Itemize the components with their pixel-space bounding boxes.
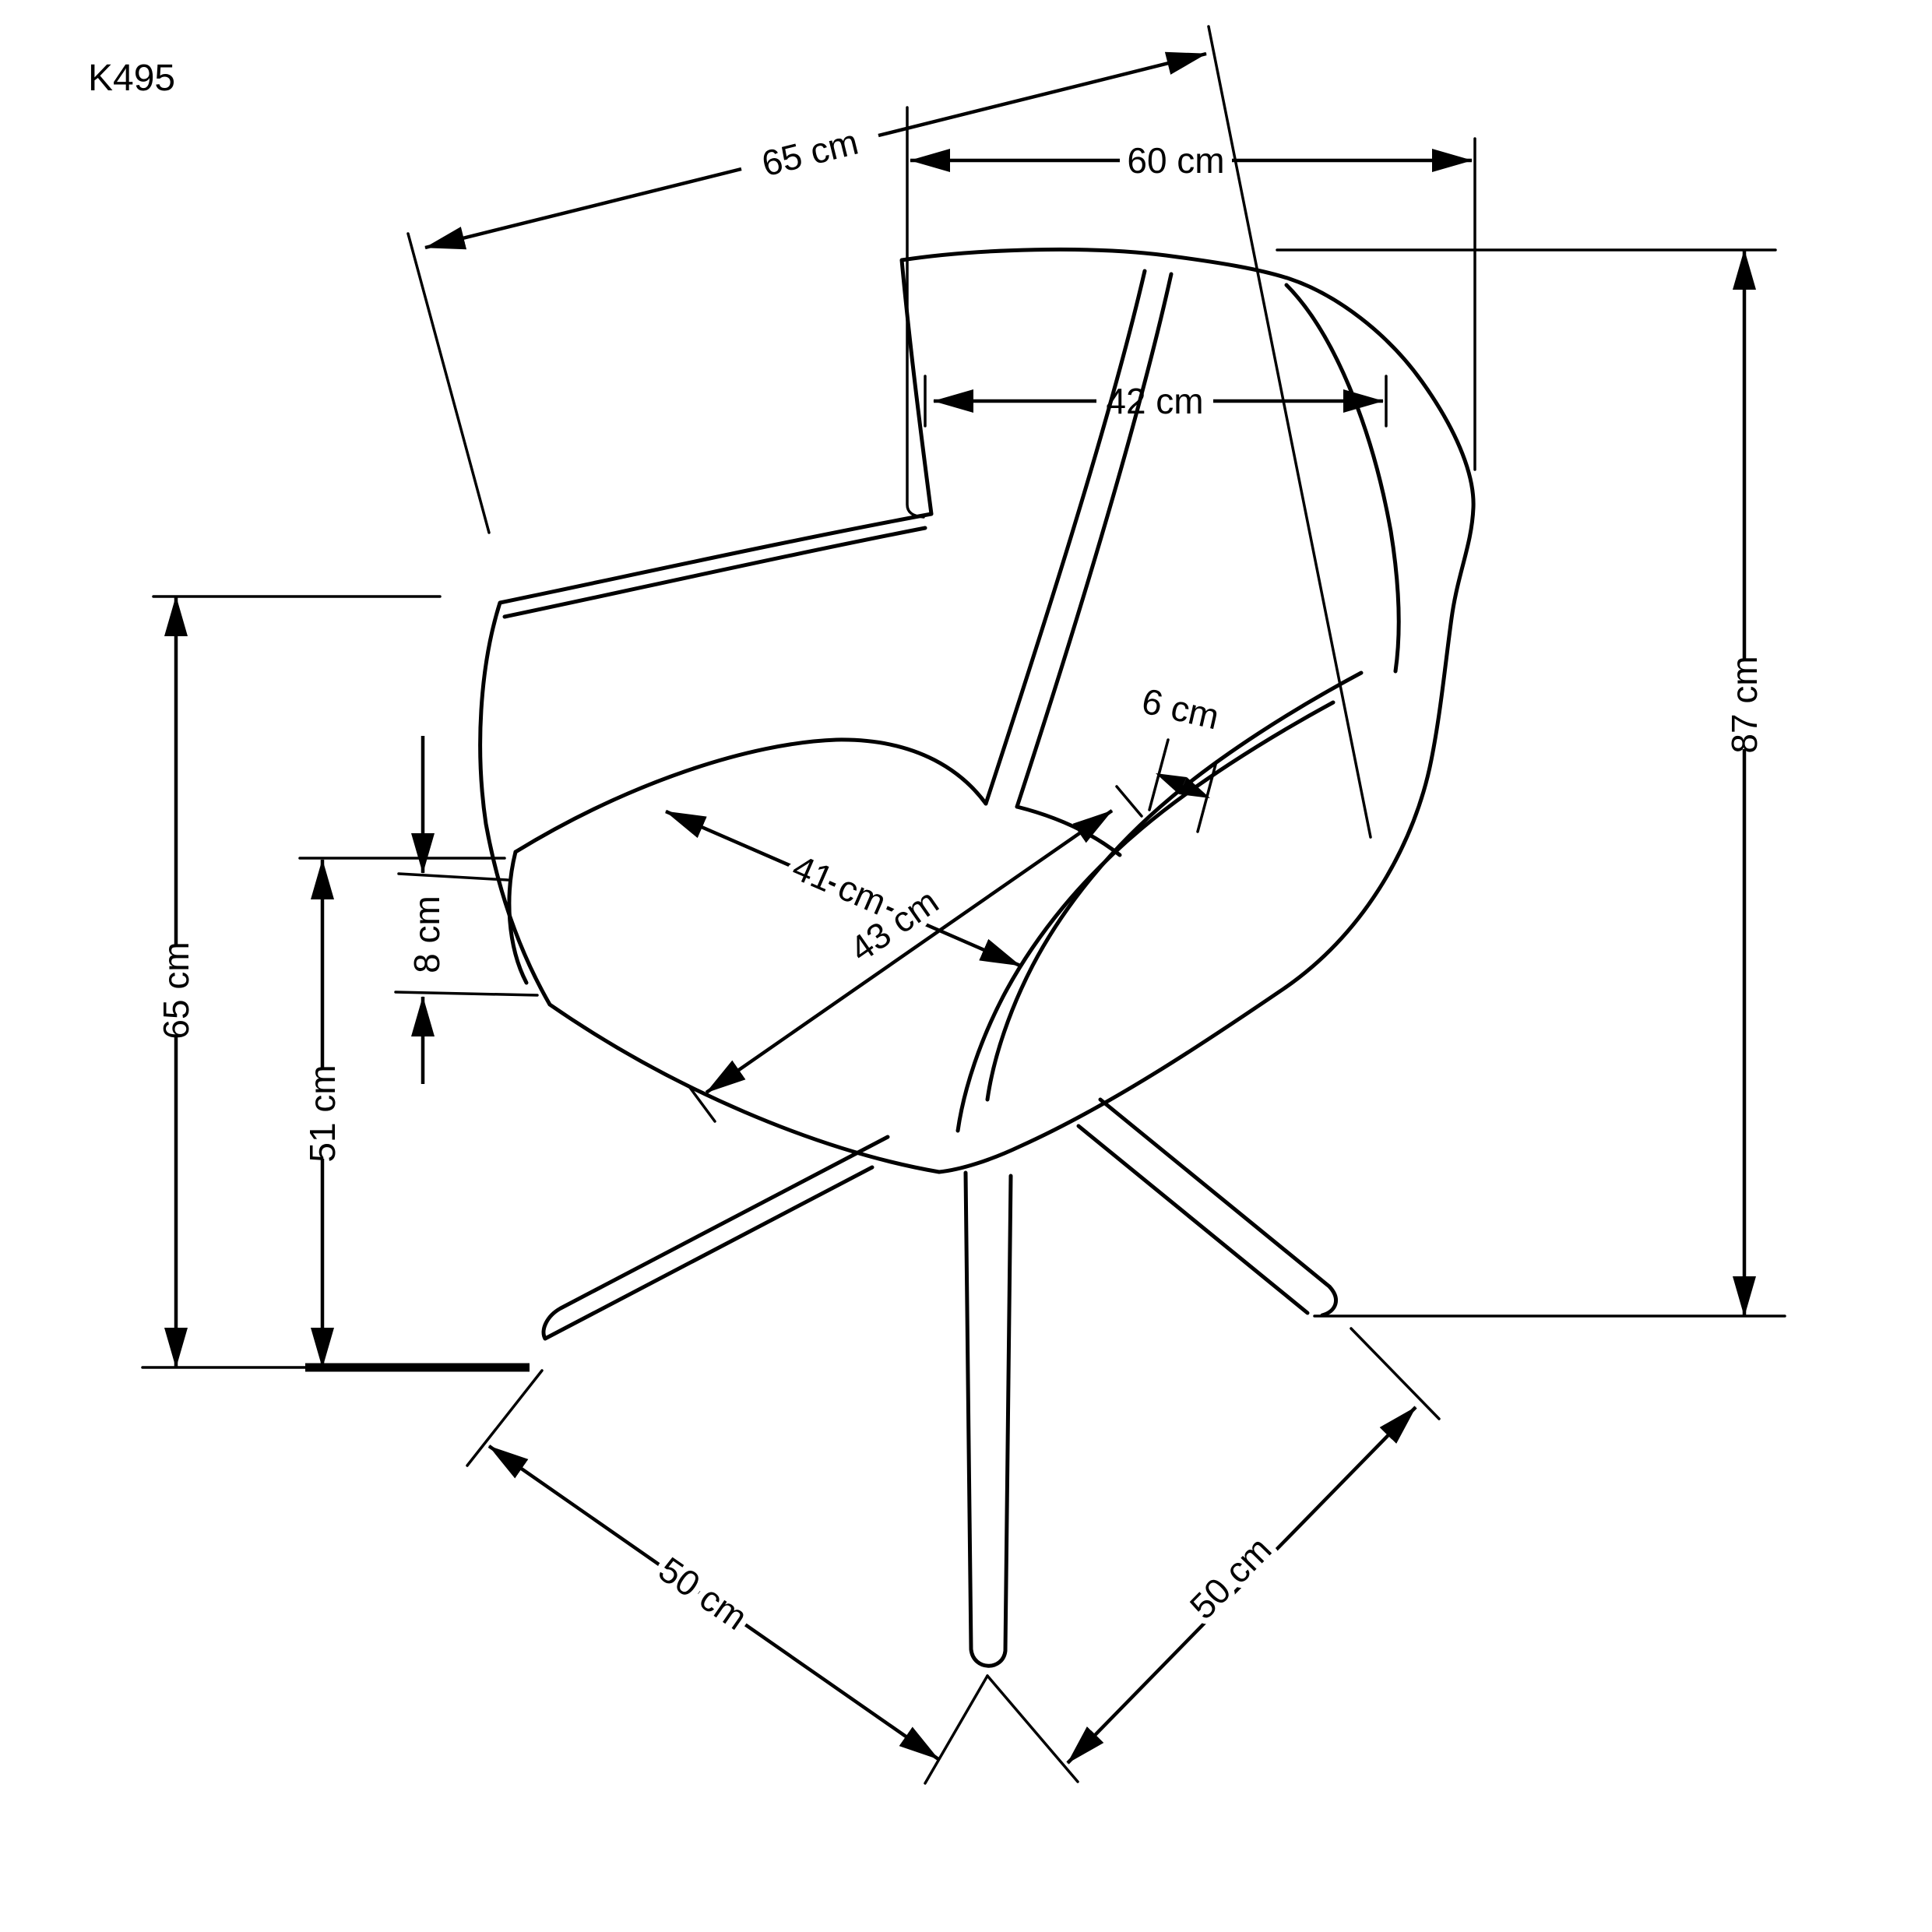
- dimension-armrest-height: 65 cm: [156, 596, 196, 1367]
- k495-dimension-drawing: 87 cm 65 cm 51 cm 8 cm 60 cm 42 cm 65 cm…: [0, 0, 1932, 1932]
- front-leg: [966, 1173, 1011, 1666]
- right-foot-tick: [1351, 1328, 1439, 1419]
- chair-line-art: [143, 249, 1785, 1666]
- cushion-top-edge-line: [399, 874, 508, 880]
- left-foot-tick: [467, 1371, 542, 1466]
- dimension-cushion-thickness: 8 cm: [406, 736, 447, 1084]
- front-foot-tick-left: [925, 1676, 987, 1783]
- backrest-seam-right: [1017, 274, 1171, 807]
- armrest-height-label: 65 cm: [156, 941, 196, 1039]
- diagonal-dim-lower: [425, 169, 741, 248]
- right-leg: [1079, 1100, 1336, 1315]
- dimension-seat-width: 43 cm: [706, 811, 1112, 1093]
- backrest-shell-outline: [480, 249, 1473, 1172]
- seat-width-dim-line: [706, 811, 1112, 1093]
- shell-rim-outer-edge: [958, 702, 1333, 1131]
- dimension-backrest-width: 42 cm: [934, 381, 1383, 421]
- dimension-diagonal-depth: 65 cm: [425, 54, 1206, 248]
- seat-height-label: 51 cm: [302, 1065, 343, 1162]
- overall-width-label: 60 cm: [1127, 140, 1224, 181]
- overall-height-label: 87 cm: [1724, 656, 1765, 753]
- shell-rim-inner-edge: [987, 673, 1361, 1100]
- shell-bottom-edge-line: [396, 992, 537, 995]
- dimension-seat-height: 51 cm: [302, 860, 343, 1367]
- dimension-base-span-left: 50 cm: [489, 1446, 938, 1759]
- base-span-left-label: 50 cm: [652, 1549, 755, 1638]
- dimension-base-span-right: 50 cm: [1068, 1407, 1416, 1763]
- armrest-inner-edge: [505, 528, 925, 617]
- seat-depth-label: 41 cm: [787, 846, 892, 923]
- diagonal-lower-extension-line: [408, 234, 489, 533]
- front-foot-tick-right: [987, 1676, 1078, 1782]
- backrest-width-label: 42 cm: [1106, 381, 1203, 421]
- diagonal-dim-upper: [878, 54, 1206, 135]
- seat-width-right-tick: [1117, 787, 1142, 816]
- width-left-extension-line: [907, 107, 924, 517]
- backrest-seam-left: [986, 271, 1145, 804]
- model-number-label: K495: [88, 58, 175, 99]
- cushion-thickness-label: 8 cm: [406, 896, 447, 973]
- diagonal-depth-label: 65 cm: [758, 121, 862, 185]
- left-leg: [544, 1137, 888, 1339]
- dimension-overall-width: 60 cm: [910, 140, 1472, 181]
- shell-rim-label: 6 cm: [1138, 680, 1223, 737]
- seat-cushion-back-edge: [516, 740, 986, 852]
- extension-lines: [153, 26, 1775, 1783]
- base-span-right-label: 50 cm: [1182, 1529, 1279, 1627]
- dimension-overall-height: 87 cm: [1724, 250, 1765, 1316]
- dimension-seat-depth: 41 cm: [666, 811, 1020, 966]
- wing-inner-edge: [1286, 285, 1399, 671]
